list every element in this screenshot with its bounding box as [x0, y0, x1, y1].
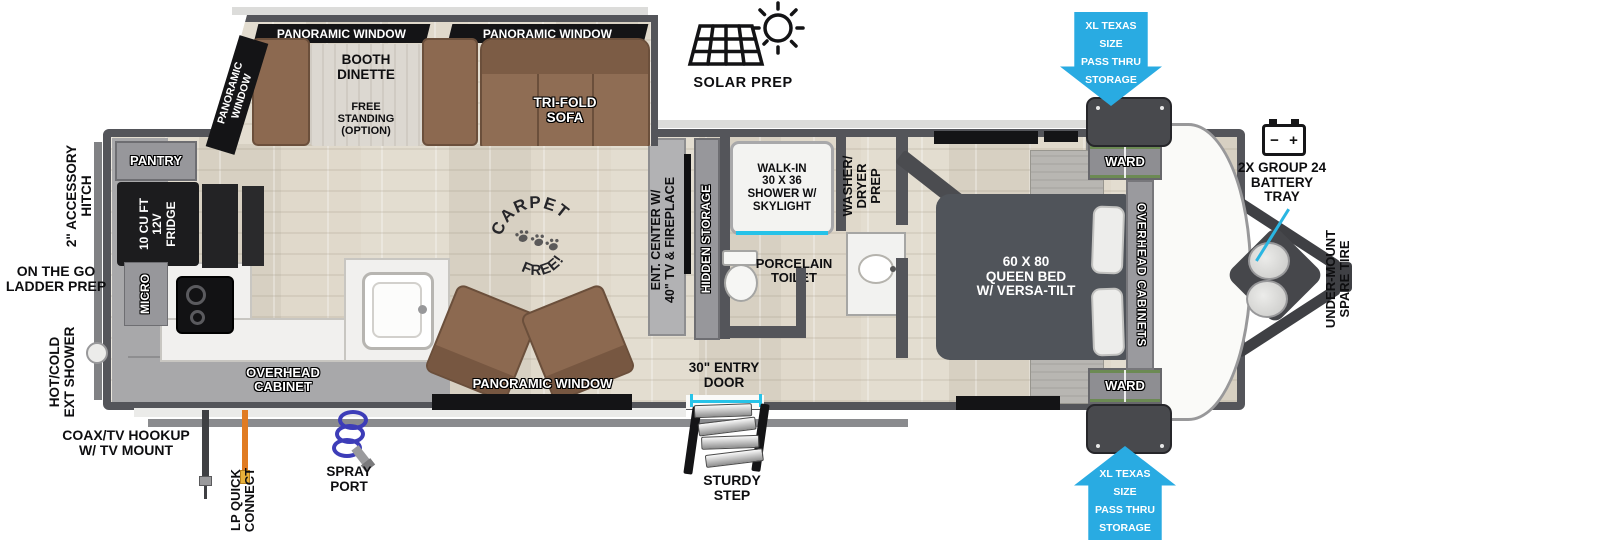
battery-terminal-right	[1291, 119, 1299, 125]
battery-terminal-left	[1269, 119, 1277, 125]
burner-small	[190, 310, 205, 325]
spray-port-label-wrap: SPRAY PORT	[312, 460, 386, 500]
dinette-table: BOOTH DINETTE FREE STANDING (OPTION)	[310, 44, 422, 146]
rivet	[1096, 444, 1100, 448]
micro-label-wrap: MICRO	[136, 262, 156, 326]
panoramic-window-bottom-label-wrap: PANORAMIC WINDOW	[450, 374, 635, 394]
coax-connector	[199, 476, 212, 486]
kitchen-sink	[362, 272, 434, 350]
hidden-storage-label: HIDDEN STORAGE	[700, 185, 713, 293]
bedroom-vent-top	[1044, 131, 1078, 142]
ent-center-label: ENT. CENTER W/ 40" TV & FIREPLACE	[650, 177, 678, 303]
bedroom-wall-mid-seg	[896, 258, 908, 358]
bed-label-wrap: 60 X 80 QUEEN BED W/ VERSA-TILT	[946, 247, 1106, 307]
ent-center-label-wrap: ENT. CENTER W/ 40" TV & FIREPLACE	[646, 135, 682, 345]
entry-door-label: 30" ENTRY DOOR	[689, 361, 759, 391]
trifold-sofa: TRI-FOLD SOFA	[480, 38, 650, 150]
dinette-bench-right	[422, 38, 478, 146]
step-tread-3	[701, 435, 759, 450]
bathroom-wall-bottom	[720, 326, 806, 338]
wardrobe-top: WARD	[1088, 144, 1162, 180]
rivet	[1096, 106, 1100, 110]
bedroom-window-bottom	[956, 396, 1060, 410]
ladder-prep-label-wrap: ON THE GO LADDER PREP	[0, 260, 112, 298]
wardrobe-top-label: WARD	[1105, 155, 1145, 169]
carpet-free-bottom-text: FREE!	[516, 248, 571, 284]
propane-tank-2	[1246, 280, 1288, 318]
booth-dinette-label: BOOTH DINETTE	[337, 53, 395, 83]
sturdy-step-label: STURDY STEP	[703, 473, 761, 504]
washer-dryer-label: WASHER/ DRYER PREP	[841, 156, 884, 217]
battery-plus: +	[1289, 132, 1298, 149]
spare-tire-label: UNDER-MOUNT SPARE TIRE	[1324, 230, 1353, 328]
accessory-hitch-label: 2" ACCESSORY HITCH	[65, 145, 95, 247]
shower-label: WALK-IN 30 X 36 SHOWER W/ SKYLIGHT	[748, 163, 817, 214]
entry-door-label-wrap: 30" ENTRY DOOR	[672, 358, 776, 394]
fridge-label: 10 CU FT 12V FRIDGE	[138, 198, 178, 250]
ext-shower-knob	[86, 342, 108, 364]
solar-prep-label-wrap: SOLAR PREP	[678, 74, 808, 94]
sofa-back	[482, 40, 648, 74]
coax-tip	[204, 486, 207, 499]
free-standing-option-label: FREE STANDING (OPTION)	[338, 101, 395, 137]
sturdy-step-label-wrap: STURDY STEP	[680, 468, 784, 508]
pantry: PANTRY	[115, 141, 197, 181]
faucet-dot	[418, 305, 427, 314]
cabinet-panel-1	[202, 184, 238, 268]
shower-skylight-line	[736, 231, 828, 235]
spray-port-label: SPRAY PORT	[326, 465, 371, 495]
pass-thru-arrow-top: XL TEXAS SIZE PASS THRU STORAGE	[1060, 12, 1162, 106]
panoramic-window-bottom	[432, 394, 632, 410]
battery-icon: −+	[1262, 124, 1306, 156]
rivet	[1160, 444, 1164, 448]
tv-40in	[684, 154, 691, 274]
pass-thru-bottom-label: XL TEXAS SIZE PASS THRU STORAGE	[1095, 468, 1155, 534]
overhead-cabinets-label: OVERHEAD CABINETS	[1134, 203, 1147, 347]
slideout-room: PANORAMIC WINDOW PANORAMIC WINDOW BOOTH …	[211, 15, 658, 146]
lp-connect-label-wrap: LP QUICK CONNECT	[226, 448, 260, 551]
solar-prep-icon	[686, 0, 806, 74]
sturdy-step-assembly	[684, 399, 771, 479]
propane-tank-1	[1248, 242, 1290, 280]
pass-thru-box-bottom	[1086, 404, 1172, 454]
trifold-sofa-label: TRI-FOLD SOFA	[534, 96, 597, 126]
battery-label: 2X GROUP 24 BATTERY TRAY	[1238, 161, 1326, 206]
battery-minus: −	[1270, 132, 1279, 149]
accessory-hitch-label-wrap: 2" ACCESSORY HITCH	[63, 131, 97, 261]
bathroom-wall-stub	[796, 268, 806, 338]
step-tread-1	[694, 403, 752, 418]
lp-connect-label: LP QUICK CONNECT	[229, 468, 258, 532]
battery-label-wrap: 2X GROUP 24 BATTERY TRAY	[1222, 156, 1342, 210]
vanity-sink	[858, 254, 894, 284]
pass-thru-box-top	[1086, 97, 1172, 147]
coax-label-wrap: COAX/TV HOOKUP W/ TV MOUNT	[48, 424, 204, 462]
fridge-label-wrap: 10 CU FT 12V FRIDGE	[137, 182, 179, 266]
ext-shower-label-wrap: HOT/COLD EXT SHOWER	[46, 307, 80, 437]
bedroom-window-top	[934, 131, 1038, 144]
solar-prep-label: SOLAR PREP	[693, 76, 792, 92]
awning-band-slideout	[232, 7, 648, 15]
svg-text:FREE!: FREE!	[516, 248, 571, 284]
pass-thru-arrow-bottom: XL TEXAS SIZE PASS THRU STORAGE	[1074, 446, 1176, 540]
hidden-storage-label-wrap: HIDDEN STORAGE	[695, 144, 719, 334]
overhead-cabinet-label-wrap: OVERHEAD CABINET	[208, 362, 358, 398]
wardrobe-bottom-label: WARD	[1105, 379, 1145, 393]
wardrobe-bottom: WARD	[1088, 368, 1162, 404]
overhead-cabinet-label: OVERHEAD CABINET	[246, 366, 320, 395]
overhead-cabinets-strip: OVERHEAD CABINETS	[1126, 180, 1154, 370]
coax-label: COAX/TV HOOKUP W/ TV MOUNT	[62, 428, 190, 459]
toilet-label: PORCELAIN TOILET	[756, 257, 833, 286]
micro-label: MICRO	[139, 274, 152, 314]
awning-rail-line	[148, 419, 908, 427]
rivet	[1160, 106, 1164, 110]
step-tread-2	[698, 416, 757, 436]
toilet-label-wrap: PORCELAIN TOILET	[744, 254, 844, 288]
pantry-label: PANTRY	[130, 154, 182, 168]
cabinet-panel-2	[242, 186, 264, 266]
ladder-prep-label: ON THE GO LADDER PREP	[6, 264, 106, 295]
bathroom-wall-left	[720, 137, 730, 339]
spare-tire-label-wrap: UNDER-MOUNT SPARE TIRE	[1321, 219, 1355, 339]
pass-thru-top-label: XL TEXAS SIZE PASS THRU STORAGE	[1081, 20, 1141, 86]
cooktop	[176, 276, 234, 334]
bed-label: 60 X 80 QUEEN BED W/ VERSA-TILT	[977, 255, 1076, 300]
burner-large	[186, 285, 206, 305]
ext-shower-label: HOT/COLD EXT SHOWER	[48, 327, 78, 418]
panoramic-window-bottom-label: PANORAMIC WINDOW	[473, 377, 613, 391]
sink-basin	[372, 282, 422, 338]
rv-floorplan-canvas: PANTRY 10 CU FT 12V FRIDGE MICRO OVERHEA…	[0, 0, 1600, 551]
walkin-shower: WALK-IN 30 X 36 SHOWER W/ SKYLIGHT	[730, 141, 834, 235]
